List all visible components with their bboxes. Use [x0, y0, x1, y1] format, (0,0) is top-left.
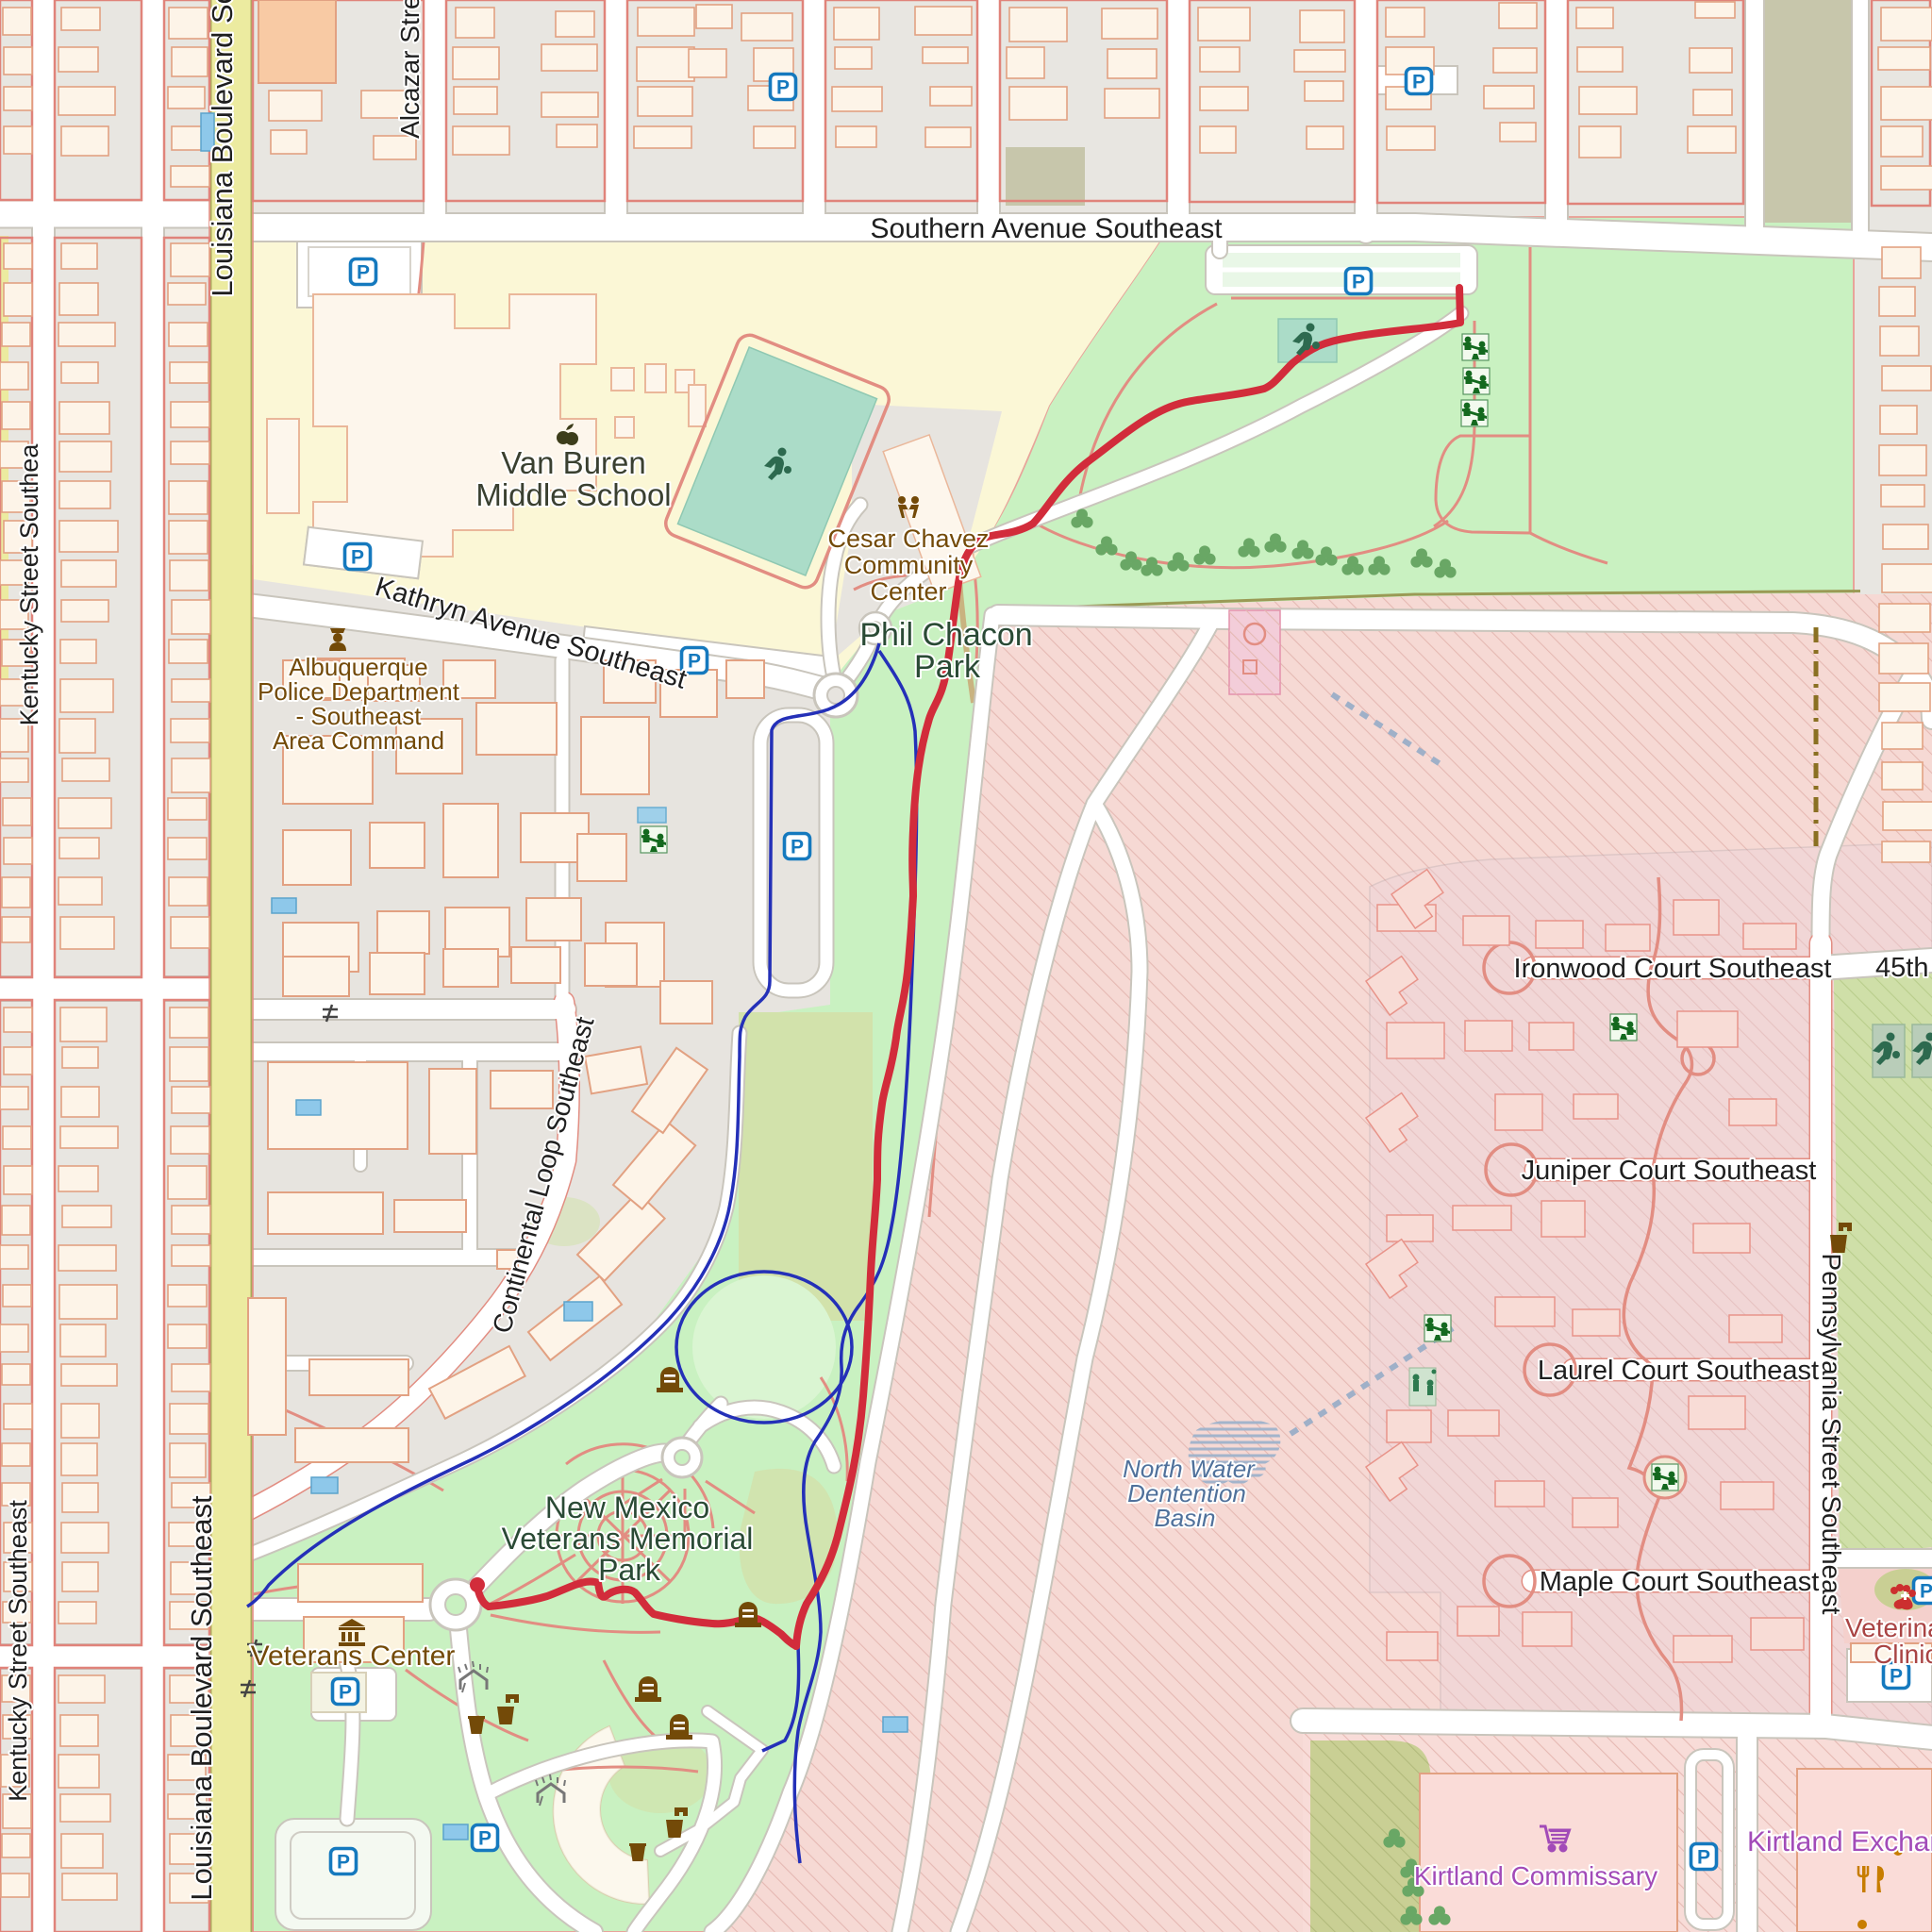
svg-text:Park: Park	[914, 649, 981, 685]
svg-text:Middle School: Middle School	[475, 477, 671, 512]
svg-text:Veterans Memorial: Veterans Memorial	[502, 1522, 754, 1556]
svg-text:Area Command: Area Command	[273, 726, 444, 755]
svg-text:45th: 45th	[1875, 953, 1928, 983]
svg-text:Park: Park	[598, 1553, 661, 1587]
svg-text:Veterinary: Veterinary	[1845, 1613, 1932, 1642]
svg-text:Louisiana Boulevard Southeast: Louisiana Boulevard Southeast	[206, 0, 239, 297]
svg-text:New Mexico: New Mexico	[545, 1491, 709, 1524]
svg-text:Louisiana Boulevard Southeast: Louisiana Boulevard Southeast	[185, 1495, 218, 1901]
svg-text:Maple Court Southeast: Maple Court Southeast	[1540, 1567, 1820, 1597]
svg-text:Cesar Chavez: Cesar Chavez	[827, 525, 989, 553]
svg-text:Laurel Court Southeast: Laurel Court Southeast	[1538, 1356, 1819, 1386]
svg-text:Kirtland Commissary: Kirtland Commissary	[1414, 1861, 1657, 1890]
svg-text:Kentucky Street Southeast: Kentucky Street Southeast	[4, 1500, 32, 1802]
svg-text:Kirtland Exchange: Kirtland Exchange	[1747, 1826, 1932, 1857]
svg-text:Van Buren: Van Buren	[501, 445, 646, 480]
svg-text:Center: Center	[870, 577, 946, 606]
svg-text:Pennsylvania Street Southeast: Pennsylvania Street Southeast	[1817, 1254, 1846, 1615]
svg-text:Basin: Basin	[1154, 1504, 1215, 1532]
svg-text:Ironwood Court Southeast: Ironwood Court Southeast	[1514, 954, 1832, 984]
svg-text:Community: Community	[844, 551, 974, 579]
svg-text:Phil Chacon: Phil Chacon	[859, 617, 1032, 653]
svg-text:Kentucky Street Southea: Kentucky Street Southea	[15, 443, 43, 726]
svg-text:Clinic: Clinic	[1874, 1640, 1932, 1669]
svg-text:Veterans Center: Veterans Center	[251, 1641, 456, 1672]
svg-text:Southern Avenue Southeast: Southern Avenue Southeast	[870, 213, 1223, 244]
svg-text:Juniper Court Southeast: Juniper Court Southeast	[1522, 1156, 1817, 1186]
svg-text:Alcazar Street Southeast: Alcazar Street Southeast	[395, 0, 425, 139]
